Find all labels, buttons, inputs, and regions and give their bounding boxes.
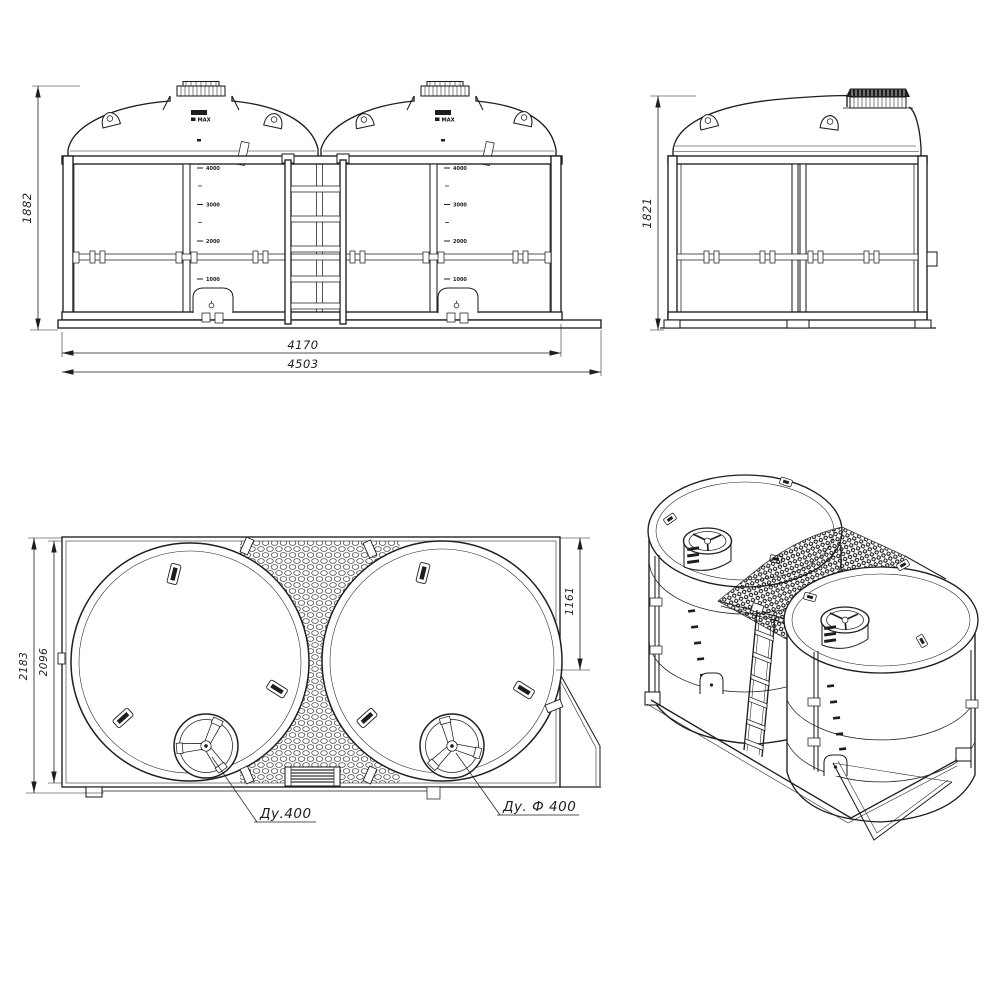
svg-text:1821: 1821: [640, 197, 654, 228]
svg-text:Ду. Ф 400: Ду. Ф 400: [502, 799, 576, 815]
side-view: 1821: [640, 89, 937, 331]
scale-mark: 1000: [206, 277, 220, 283]
svg-text:1882: 1882: [20, 192, 34, 223]
lifting-lug-icon: [698, 113, 719, 130]
side-frame: [660, 156, 937, 328]
lifting-lug-icon: [820, 114, 840, 130]
front-view: MAX MAX: [20, 82, 601, 377]
front-tank-domes: [68, 96, 556, 158]
scale-mark: 1000: [453, 277, 467, 283]
svg-text:4170: 4170: [287, 338, 318, 352]
front-frame: [58, 156, 601, 328]
lifting-lug-icon: [354, 112, 374, 129]
tank1-cap-label: MAX: [191, 110, 211, 142]
scale-mark: 2000: [453, 239, 467, 245]
technical-drawing-page: MAX MAX: [0, 0, 1000, 1000]
scale-mark: 4000: [453, 166, 467, 172]
front-tank1-cap: [177, 82, 225, 97]
scale-mark: 3000: [453, 203, 467, 209]
drawing-canvas: MAX MAX: [0, 0, 1000, 1000]
tank1-level-scale: 4000 3000 2000 1000: [197, 166, 220, 283]
top-gusset: [560, 674, 601, 787]
tank2-max-label: MAX: [442, 118, 455, 124]
top-view: Ду.400 Ду. Ф 400 2183 2096 1161: [18, 537, 601, 822]
iso-tank-front: [784, 559, 978, 822]
scale-mark: 3000: [206, 203, 220, 209]
tank2-level-scale: 4000 3000 2000 1000: [444, 166, 467, 283]
scale-mark: 2000: [206, 239, 220, 245]
frame-foot: [86, 787, 102, 797]
top-ladder: [285, 767, 340, 786]
lifting-lug-icon: [514, 110, 534, 127]
svg-text:2096: 2096: [38, 648, 50, 677]
scale-mark: 4000: [206, 166, 220, 172]
lifting-lug-icon: [100, 111, 121, 128]
front-tank2-cap: [421, 82, 469, 97]
frame-clip: [58, 653, 65, 664]
svg-text:1161: 1161: [564, 587, 576, 616]
svg-text:Ду.400: Ду.400: [259, 806, 312, 822]
lifting-lug-icon: [264, 112, 284, 129]
frame-tab: [427, 787, 440, 799]
front-ladder: [282, 154, 349, 324]
tank1-max-label: MAX: [198, 118, 211, 124]
svg-text:4503: 4503: [287, 357, 318, 371]
isometric-view: [645, 475, 978, 840]
tank2-cap-label: MAX: [435, 110, 455, 142]
side-cap: [843, 89, 913, 109]
dim-front-frame-width: 4170: [62, 324, 561, 357]
iso-level-marks: [688, 609, 707, 676]
svg-text:2183: 2183: [18, 652, 30, 681]
